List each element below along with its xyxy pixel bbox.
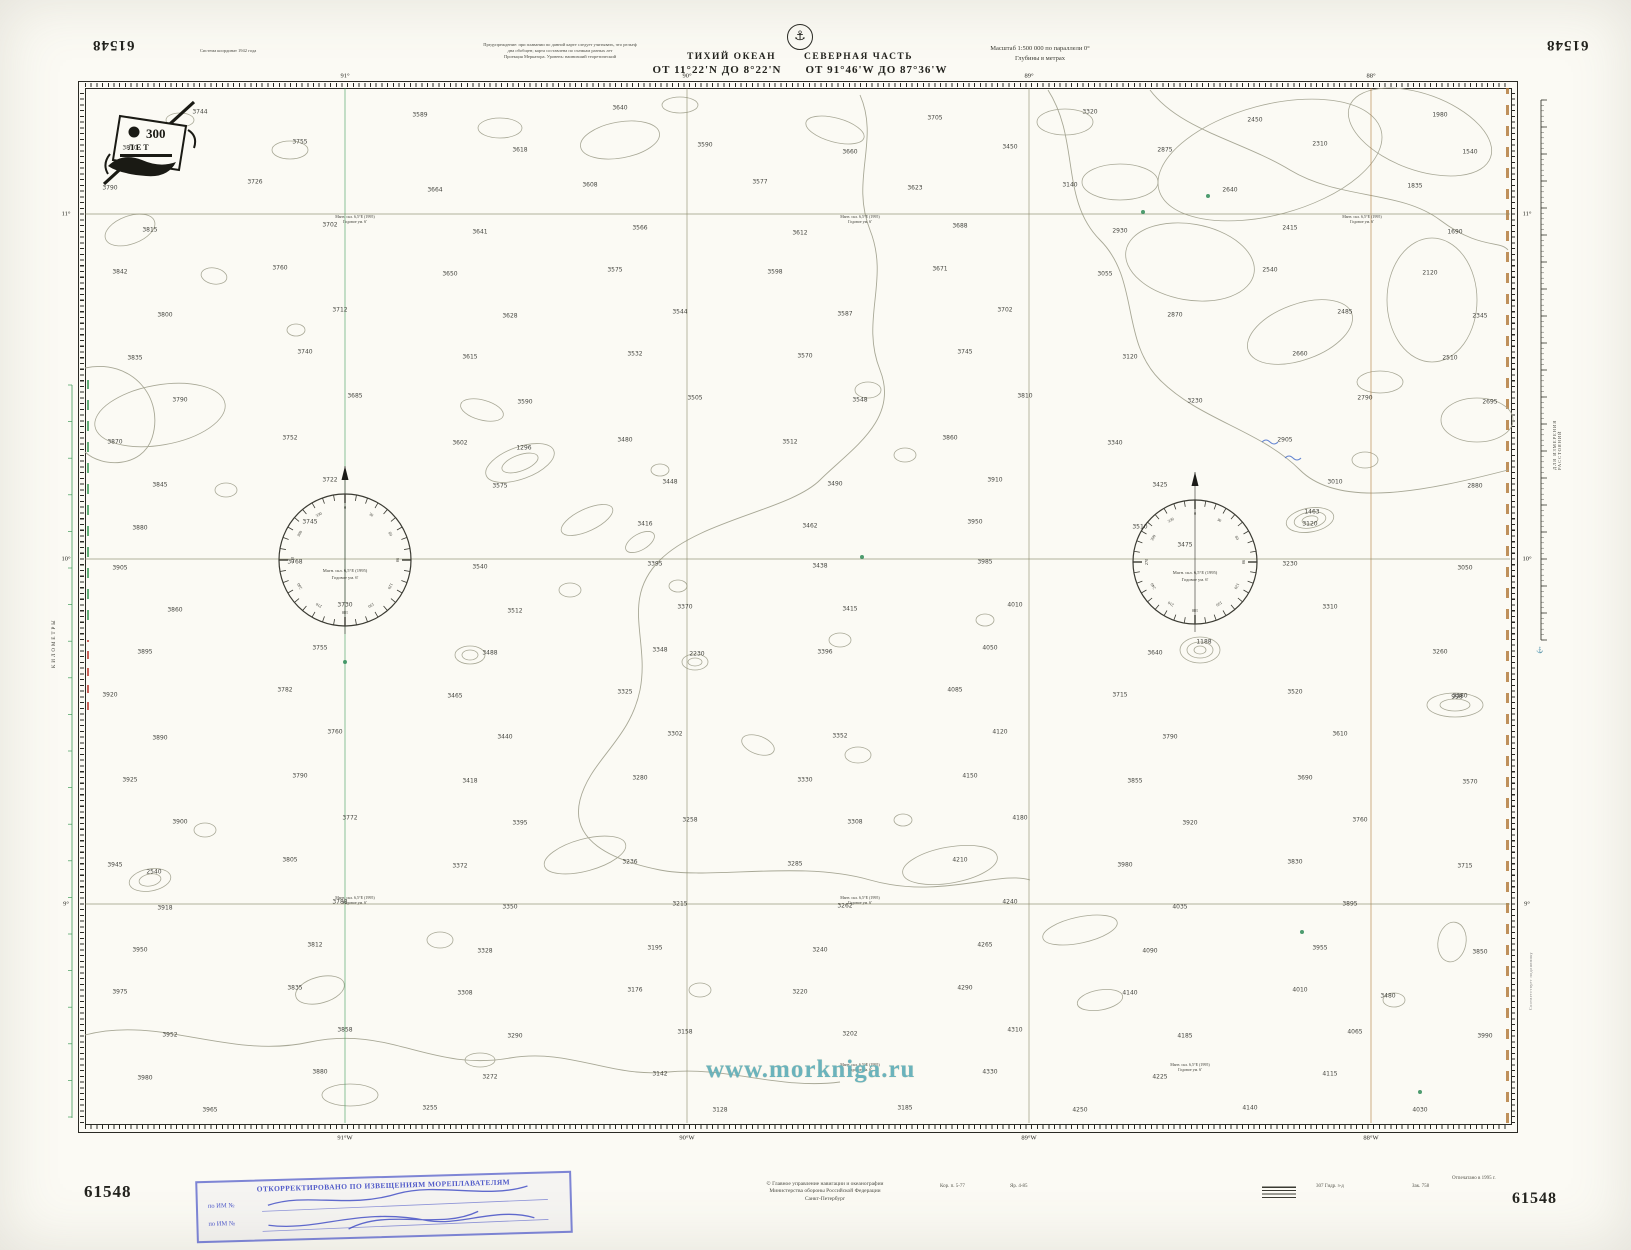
print-mark [1262, 1185, 1296, 1198]
publisher-line-3: Санкт-Петербург [690, 1196, 960, 1203]
handwriting-line-2 [268, 1210, 534, 1231]
morkniga-watermark: www.morkniga.ru [706, 1056, 915, 1084]
latitude-label-right: 10° [1522, 556, 1531, 563]
stamp-handwriting [197, 1173, 566, 1237]
longitude-label-bottom: 88°W [1363, 1135, 1378, 1142]
longitude-label-bottom: 89°W [1021, 1135, 1036, 1142]
correction-stamp: ОТКОРРЕКТИРОВАНО ПО ИЗВЕЩЕНИЯМ МОРЕПЛАВА… [195, 1171, 573, 1243]
publisher-block: © Главное управление навигации и океаног… [690, 1181, 960, 1203]
stamp-rule-1 [262, 1199, 548, 1211]
footer-note-5: Отпечатано в 1995 г. [1452, 1176, 1496, 1181]
kilometers-scale-label: КИЛОМЕТРЫ [52, 618, 57, 668]
publisher-line-2: Министерства обороны Российской Федераци… [690, 1188, 960, 1195]
longitude-label-bottom: 91°W [337, 1135, 352, 1142]
handwriting-line-1 [268, 1186, 528, 1205]
longitude-label-top: 89° [1024, 73, 1033, 80]
footer-note-4: Зак. 758 [1412, 1184, 1429, 1189]
latitude-label-left: 9° [63, 901, 69, 908]
latitude-label-right: 9° [1524, 901, 1530, 908]
longitude-label-bottom: 90°W [679, 1135, 694, 1142]
footer-note-2: Яр. 4-85 [1010, 1184, 1028, 1189]
longitude-label-top: 91° [340, 73, 349, 80]
ruler-caption: ДЛЯ ИЗМЕРЕНИЯ РАССТОЯНИЙ [1552, 391, 1562, 470]
side-note: Соответствует подлиннику [1528, 952, 1533, 1010]
footer-note-3: 307 Гидр. з-д [1316, 1184, 1344, 1189]
longitude-label-top: 90° [682, 73, 691, 80]
nautical-chart-page: 61548 61548 61548 61548 Система координа… [0, 0, 1631, 1250]
latitude-label-left: 11° [62, 211, 71, 218]
longitude-label-top: 88° [1366, 73, 1375, 80]
footer-note-1: Кор. п. 5-77 [940, 1184, 965, 1189]
latitude-label-right: 11° [1523, 211, 1532, 218]
latitude-label-left: 10° [61, 556, 70, 563]
